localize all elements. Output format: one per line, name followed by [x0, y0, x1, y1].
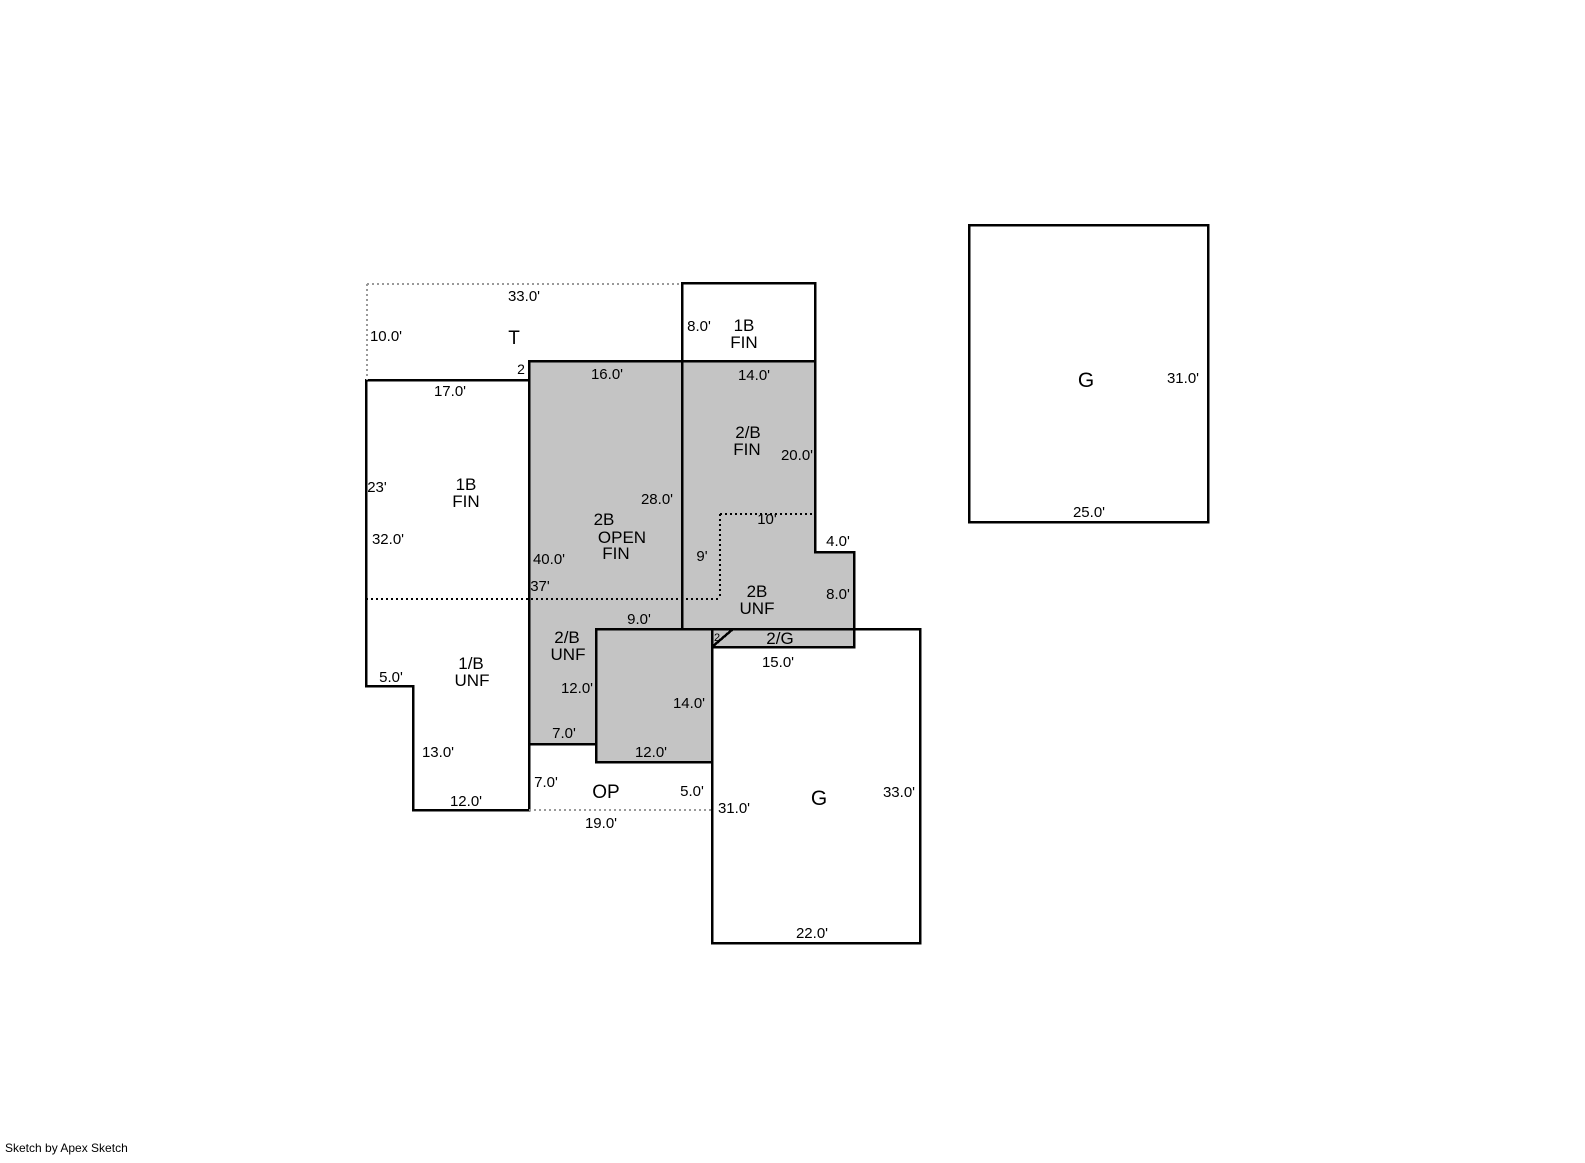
dim-dotted-10: 10' — [757, 511, 777, 528]
label-1b-unf-line2: UNF — [455, 671, 490, 690]
dim-t-width: 33.0' — [508, 288, 540, 305]
dim-1b-top-height: 8.0' — [687, 318, 711, 335]
dim-t-step: 2 — [517, 361, 525, 377]
label-2g: 2/G — [766, 629, 793, 648]
dim-2b-unf-height: 8.0' — [826, 586, 850, 603]
dim-op-left: 7.0' — [534, 774, 558, 791]
label-2b-open-line1: 2B — [594, 510, 615, 529]
dim-2b-unf-left-width: 7.0' — [552, 725, 576, 742]
label-g-attached: G — [811, 787, 827, 810]
dim-2b-open-left-height: 40.0' — [533, 551, 565, 568]
dim-2b-fin-height: 20.0' — [781, 447, 813, 464]
dim-1b-left-height-total: 32.0' — [372, 531, 404, 548]
dim-g-detached-width: 25.0' — [1073, 504, 1105, 521]
dim-1b-left-height-upper: 23' — [367, 479, 387, 496]
dim-2b-unf-lower-width: 12.0' — [635, 744, 667, 761]
label-g-detached: G — [1078, 369, 1094, 392]
dim-1b-unf-height: 13.0' — [422, 744, 454, 761]
apex-sketch-watermark: Sketch by Apex Sketch — [5, 1141, 128, 1155]
dim-2b-unf-lower-height: 14.0' — [673, 695, 705, 712]
dim-2b-unf-step: 4.0' — [826, 533, 850, 550]
dim-dotted-37: 37' — [530, 578, 550, 595]
dim-g-right-height: 33.0' — [883, 784, 915, 801]
dim-dotted-9: 9' — [696, 548, 707, 565]
dim-g-bottom-width: 22.0' — [796, 925, 828, 942]
dim-2b-open-width: 16.0' — [591, 366, 623, 383]
dim-2b-fin-width: 14.0' — [738, 367, 770, 384]
label-1b-left-line2: FIN — [452, 492, 479, 511]
label-1b-top-line2: FIN — [730, 333, 757, 352]
dim-1b-unf-step: 5.0' — [379, 669, 403, 686]
label-2b-open-line3: FIN — [602, 544, 629, 563]
dim-g-left-height: 31.0' — [718, 800, 750, 817]
sketch-canvas: 33.0' 10.0' T 2 8.0' 1B FIN 14.0' 2/B FI… — [0, 0, 1585, 1163]
label-2b-unf-line2: UNF — [740, 599, 775, 618]
label-t: T — [508, 328, 520, 349]
dim-1b-left-width: 17.0' — [434, 383, 466, 400]
dim-g-top-width: 15.0' — [762, 654, 794, 671]
dim-1b-unf-width: 12.0' — [450, 793, 482, 810]
label-2b-unf-left-line2: UNF — [551, 645, 586, 664]
label-op: OP — [592, 782, 619, 803]
dim-2b-unf-left-height: 12.0' — [561, 680, 593, 697]
label-2g-story: 2 — [714, 632, 720, 644]
dim-2b-unf-lower-top: 9.0' — [627, 611, 651, 628]
label-2b-fin-line2: FIN — [733, 440, 760, 459]
dim-op-width: 19.0' — [585, 815, 617, 832]
dim-op-right: 5.0' — [680, 783, 704, 800]
floorplan-sketch: 33.0' 10.0' T 2 8.0' 1B FIN 14.0' 2/B FI… — [0, 0, 1585, 1163]
dim-g-detached-height: 31.0' — [1167, 370, 1199, 387]
dim-t-height: 10.0' — [370, 328, 402, 345]
dim-2b-open-height: 28.0' — [641, 491, 673, 508]
